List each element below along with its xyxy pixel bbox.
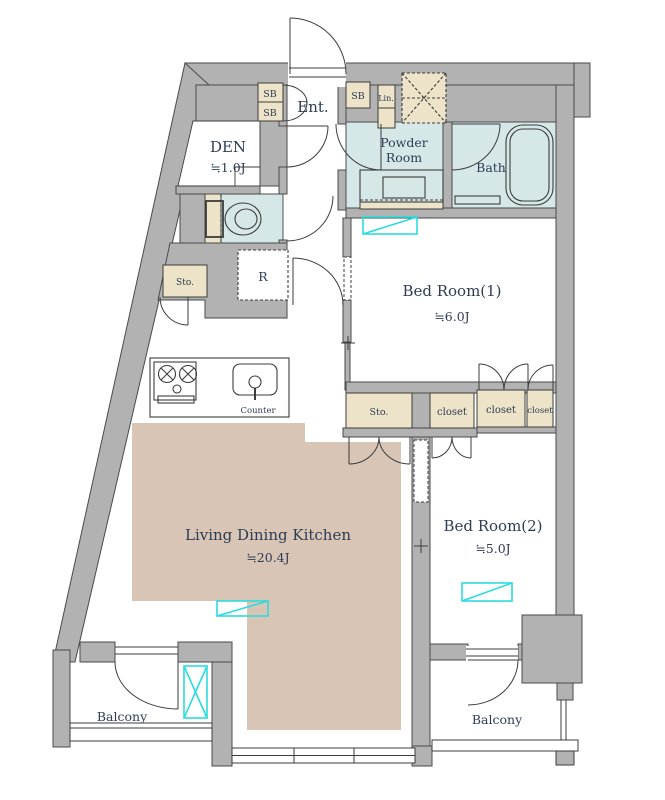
- vanity-counter: [360, 170, 443, 202]
- label-linen: Lin.: [378, 94, 394, 103]
- label-closet-3: closet: [527, 406, 553, 416]
- wall-bedroom1-left-mid: [343, 300, 351, 342]
- balcony-right-rail-post: [556, 751, 574, 765]
- label-refrigerator: R: [258, 269, 268, 284]
- label-ldk: Living Dining Kitchen: [185, 526, 351, 544]
- wall-under-closets: [477, 427, 556, 433]
- label-bedroom2-size: ≒5.0J: [475, 541, 510, 556]
- balcony-right-railing: [432, 740, 578, 751]
- label-den-size: ≒1.0J: [210, 160, 245, 175]
- wall-top-right-step: [574, 63, 590, 117]
- label-counter: Counter: [240, 406, 276, 416]
- wall-bedroom2-bottom-left: [430, 644, 468, 660]
- wall-den-top: [196, 85, 258, 121]
- wall-corridor-left-2: [279, 167, 287, 194]
- label-bedroom1: Bed Room(1): [402, 282, 501, 300]
- label-shoebox-3: SB: [351, 91, 365, 102]
- label-storage-left: Sto.: [176, 278, 194, 288]
- entry-opening: [288, 61, 346, 87]
- label-bedroom2: Bed Room(2): [443, 517, 542, 535]
- label-entrance: Ent.: [297, 98, 328, 116]
- wall-pillar-left: [212, 662, 232, 766]
- wall-pillar-tab: [557, 683, 573, 700]
- wall-under-storage: [343, 428, 477, 437]
- wall-pillar-bottom-right: [522, 615, 582, 683]
- label-powder-line1: Powder: [380, 135, 428, 150]
- label-shoebox-2: SB: [263, 108, 277, 119]
- label-closet-1: closet: [437, 407, 467, 418]
- bedroom1-sliding-door: [344, 257, 351, 300]
- wall-powder-bath-divider: [443, 122, 452, 213]
- label-shoebox-1: SB: [263, 89, 277, 100]
- balcony-left-railing: [70, 723, 212, 741]
- label-closet-2: closet: [486, 405, 516, 416]
- wall-corridor-right-1: [338, 85, 346, 124]
- wall-balcony-left: [53, 650, 70, 747]
- bedroom2-sliding-door: [414, 440, 428, 502]
- label-balcony-right: Balcony: [472, 712, 523, 727]
- wall-ldk-balcony-left: [80, 642, 115, 662]
- label-storage-row: Sto.: [370, 407, 389, 418]
- floor-plan-page: Ent. SB SB SB Lin. DEN ≒1.0J Powder Room…: [0, 0, 665, 800]
- floor-plan: Ent. SB SB SB Lin. DEN ≒1.0J Powder Room…: [0, 0, 665, 800]
- wall-ldk-balcony-right: [178, 642, 232, 662]
- label-balcony-left: Balcony: [97, 709, 148, 724]
- wall-corridor-right-2: [338, 170, 346, 210]
- linen-cabinet: [378, 85, 395, 128]
- wall-bedroom1-left-upper: [343, 218, 351, 257]
- wall-den-bottom: [176, 186, 260, 194]
- label-bedroom1-size: ≒6.0J: [434, 309, 469, 324]
- label-bath: Bath: [476, 160, 506, 175]
- wall-top: [185, 63, 590, 85]
- label-den: DEN: [210, 138, 246, 156]
- wall-toilet-left: [180, 194, 205, 243]
- label-powder-line2: Room: [386, 150, 422, 165]
- label-ldk-size: ≒20.4J: [246, 550, 289, 565]
- wall-right: [556, 85, 574, 615]
